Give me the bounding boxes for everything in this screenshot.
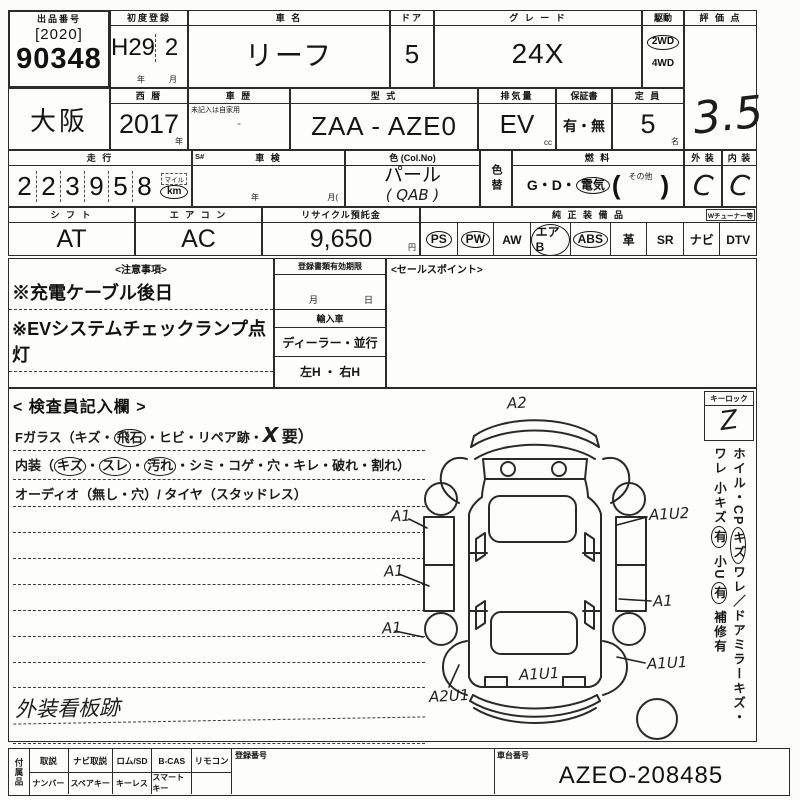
- equipment-item: AW: [502, 233, 521, 247]
- sales-point-title: <セールスポイント>: [387, 259, 756, 278]
- shift-cell: シ フ ト AT: [8, 207, 135, 256]
- equipment-item: 革: [623, 231, 635, 248]
- audio-tire-line: オーディオ（無し・穴）/ タイヤ（スタッドレス）: [13, 480, 425, 507]
- capacity-unit: 名: [671, 136, 679, 147]
- score-cell: 評 価 点 3.5: [684, 10, 757, 150]
- blank-line: [13, 507, 425, 533]
- registration-validity-title: 登録書類有効期限: [275, 259, 385, 275]
- history-label: 車 歴: [189, 89, 289, 104]
- caution-notes-title: <注意事項>: [9, 259, 273, 278]
- diagram-annotations: A2A1A1U2A1A1A1A1U1A1U1A2U1: [379, 389, 691, 741]
- equipment-item: ナビ: [690, 231, 714, 248]
- accessory-label: リモコン: [192, 749, 232, 772]
- calendar-year-cell: 西 暦 2017 年: [110, 88, 188, 150]
- recycle-deposit-cell: リサイクル預託金 9,650 円: [262, 207, 420, 256]
- diagram-annotation: A1: [382, 618, 403, 637]
- interior-grade-cell: 内 装 C: [722, 150, 757, 207]
- registration-number-label: 登録番号: [232, 749, 494, 762]
- mileage-cell: 走 行 2 2 3 9 5 8 マイル km: [8, 150, 192, 207]
- fuel-cell: 燃 料 G・D・ 電気 ( その他 ): [512, 150, 684, 207]
- door-cell: ドア 5: [390, 10, 434, 88]
- drive-label: 駆動: [643, 11, 683, 26]
- equipment-item: PW: [461, 231, 490, 248]
- keylock-mark: Z: [703, 403, 755, 439]
- inspector-notes-area: < 検査員記入欄 > Fガラス（キズ・飛石・ヒビ・リペア跡・X 要） 内装（キズ…: [13, 391, 425, 777]
- fuel-paren-open: (: [612, 170, 621, 201]
- first-registration-cell: 初度登録 H29 2 年 月: [110, 10, 188, 88]
- shift-label: シ フ ト: [9, 208, 134, 223]
- registration-month-unit: 月: [309, 293, 318, 306]
- fuel-options: G・D・: [527, 175, 576, 195]
- displacement-cell: 排気量 EV cc: [478, 88, 556, 150]
- shaken-label: 車 検: [193, 151, 344, 166]
- caution-note-line: ※EVシステムチェックランプ点灯: [9, 310, 273, 372]
- equipment-item: エアB: [531, 224, 570, 256]
- warranty-options: 有・無: [557, 104, 611, 148]
- capacity-cell: 定 員 5 名: [612, 88, 684, 150]
- color-code-handwritten: ( QAB ): [346, 186, 479, 204]
- model-code: ZAA - AZE0: [291, 104, 477, 148]
- diagram-annotation: A2U1: [429, 686, 470, 706]
- keylock-box: キーロック Z: [704, 391, 754, 441]
- fuel-electric-circled: 電気: [576, 177, 610, 194]
- model-cell: 型 式 ZAA - AZE0: [290, 88, 478, 150]
- glass-circled-flaw: 飛石: [114, 429, 146, 447]
- equipment-row: PS PW AW エアB ABS 革 SR ナビ DTV: [421, 223, 756, 256]
- exterior-grade: C: [683, 164, 724, 207]
- shift-value: AT: [9, 223, 134, 255]
- blank-line: [13, 559, 425, 585]
- equipment-cell: 純 正 装 備 品 Wチューナー等 PS PW AW エアB ABS 革 SR …: [420, 207, 757, 256]
- equipment-item: ABS: [573, 231, 608, 248]
- door-count: 5: [391, 26, 433, 82]
- glass-hand-mark: X: [263, 423, 278, 447]
- displacement-unit: cc: [544, 138, 552, 147]
- blank-line: [13, 533, 425, 559]
- diagram-annotation: A1: [384, 561, 405, 580]
- lot-number-label: 出品番号: [10, 12, 108, 26]
- color-label: 色 (Col.No): [346, 151, 479, 166]
- side-note-circled-ari2: 有: [711, 582, 727, 605]
- color-change-label: 色替: [481, 151, 511, 206]
- diagram-annotation: A1U1: [647, 653, 688, 673]
- aircon-cell: エ ア コ ン AC: [135, 207, 262, 256]
- side-note-circled-kizu: キズ: [730, 527, 746, 564]
- shaken-cell: 車 検 S# 年 月(: [192, 150, 345, 207]
- door-label: ドア: [391, 11, 433, 26]
- inspector-section: < 検査員記入欄 > Fガラス（キズ・飛石・ヒビ・リペア跡・X 要） 内装（キズ…: [8, 388, 757, 742]
- fuel-other-label: その他: [629, 171, 653, 182]
- registration-number-cell: 登録番号: [232, 749, 495, 794]
- mileage-digit: 3: [60, 171, 84, 202]
- mileage-digit: 9: [84, 171, 108, 202]
- mileage-digit: 8: [132, 171, 156, 202]
- diagram-annotation: A1: [391, 506, 412, 525]
- auction-sheet: 出品番号 [2020] 90348 初度登録 H29 2 年 月 車 名 リーフ…: [0, 0, 800, 800]
- accessory-label: キーレス: [113, 772, 153, 794]
- car-name: リーフ: [189, 26, 389, 82]
- interior-circled-kizu: キズ: [54, 457, 86, 475]
- car-name-cell: 車 名 リーフ: [188, 10, 390, 88]
- aircon-label: エ ア コ ン: [136, 208, 261, 223]
- history-cell: 車 歴 未記入は自家用 -: [188, 88, 290, 150]
- glass-condition-line: Fガラス（キズ・飛石・ヒビ・リペア跡・X 要）: [13, 419, 425, 451]
- mileage-digit: 2: [36, 171, 60, 202]
- s-mark: S#: [195, 152, 204, 161]
- interior-circled-sure: スレ: [99, 457, 131, 475]
- color-name: パール: [346, 166, 479, 186]
- color-cell: 色 (Col.No) パール ( QAB ): [345, 150, 480, 207]
- score-value: 3.5: [691, 86, 766, 144]
- lot-number: 90348: [10, 43, 108, 76]
- accessory-label: スマートキー: [152, 772, 192, 794]
- first-reg-month-unit: 月: [169, 74, 177, 85]
- blank-line: [13, 585, 425, 611]
- blank-line: [13, 663, 425, 688]
- drive-4wd: 4WD: [643, 58, 683, 69]
- first-reg-year: H29: [111, 34, 155, 62]
- diagram-annotation: A1U2: [649, 504, 690, 524]
- accessory-label: スペアキー: [69, 772, 113, 794]
- accessory-blank: [192, 772, 232, 794]
- recycle-value: 9,650: [263, 223, 419, 255]
- drive-2wd-selected: 2WD: [647, 35, 679, 50]
- diagram-annotation: A2: [507, 393, 528, 412]
- accessory-label: B-CAS: [152, 749, 192, 772]
- registration-validity-cell: 登録書類有効期限 月 日 輸入車 ディーラー・並行 左H ・ 右H: [274, 258, 386, 388]
- accessory-label: ロム/SD: [113, 749, 153, 772]
- diagram-annotation: A1: [653, 591, 674, 610]
- equipment-item: DTV: [726, 233, 750, 247]
- grade: 24X: [435, 26, 641, 82]
- warranty-label: 保証書: [557, 89, 611, 104]
- interior-grade: C: [721, 164, 759, 206]
- inspector-title: < 検査員記入欄 >: [13, 391, 425, 419]
- blank-line: [13, 637, 425, 663]
- lot-number-cell: 出品番号 [2020] 90348: [8, 10, 110, 88]
- fuel-label: 燃 料: [513, 151, 683, 166]
- drive-cell: 駆動 2WD 4WD: [642, 10, 684, 88]
- calendar-year-unit: 年: [175, 136, 183, 147]
- blank-line: [13, 611, 425, 637]
- recycle-unit: 円: [408, 242, 416, 253]
- first-reg-year-unit: 年: [137, 74, 145, 85]
- side-note-circled-ari1: 有: [711, 526, 727, 549]
- capacity-label: 定 員: [613, 89, 683, 104]
- registration-day-unit: 日: [364, 293, 373, 306]
- recycle-label: リサイクル預託金: [263, 208, 419, 223]
- aircon-value: AC: [136, 223, 261, 255]
- shaken-year-unit: 年: [251, 192, 259, 203]
- km-unit-circled: km: [160, 185, 188, 200]
- first-registration-label: 初度登録: [111, 11, 187, 26]
- side-note-vertical: ホイル・CPキズワレ／ドアミラーキズ・ワレ 小キズ有 小U有 補修有: [710, 447, 748, 735]
- first-reg-month: 2: [155, 34, 187, 62]
- chassis-number-cell: 車台番号 AZEO-208485: [494, 749, 788, 794]
- tuner-label: Wチューナー等: [706, 209, 755, 221]
- color-change-cell: 色替: [480, 150, 512, 207]
- caution-note-line: ※充電ケーブル後日: [9, 278, 273, 310]
- accessory-label: 取説: [29, 749, 69, 772]
- mileage-label: 走 行: [9, 151, 191, 166]
- sales-point-cell: <セールスポイント>: [386, 258, 757, 388]
- region: 大阪: [9, 89, 109, 149]
- warranty-cell: 保証書 有・無: [556, 88, 612, 150]
- mile-unit-label: マイル: [161, 173, 187, 185]
- equipment-item: PS: [426, 231, 452, 248]
- fuel-paren-close: ): [661, 170, 670, 201]
- diagram-annotation: A1U1: [519, 664, 560, 684]
- region-cell: 大阪: [8, 88, 110, 150]
- car-name-label: 車 名: [189, 11, 389, 26]
- shaken-month-unit: 月(: [327, 192, 338, 203]
- mileage-digit: 2: [13, 171, 36, 202]
- equipment-item: SR: [657, 233, 674, 247]
- caution-notes-cell: <注意事項> ※充電ケーブル後日 ※EVシステムチェックランプ点灯: [8, 258, 274, 388]
- grade-cell: グ レ ー ド 24X: [434, 10, 642, 88]
- calendar-year-label: 西 暦: [111, 89, 187, 104]
- import-car-label: 輸入車: [275, 310, 385, 328]
- dealer-parallel-label: ディーラー・並行: [275, 328, 385, 356]
- lot-year: [2020]: [10, 26, 108, 43]
- exterior-grade-cell: 外 装 C: [684, 150, 722, 207]
- accessories-table: 付属品 取説 ナビ取説 ロム/SD B-CAS リモコン ナンバー スペアキー …: [8, 748, 790, 796]
- displacement-label: 排気量: [479, 89, 555, 104]
- car-diagram: A2A1A1U2A1A1A1A1U1A1U1A2U1: [379, 389, 691, 741]
- history-note: 未記入は自家用: [189, 104, 289, 116]
- score-label: 評 価 点: [685, 11, 756, 26]
- mileage-digit: 5: [108, 171, 132, 202]
- handle-position-label: 左H ・ 右H: [275, 356, 385, 385]
- model-label: 型 式: [291, 89, 477, 104]
- accessories-side-label: 付属品: [9, 749, 30, 795]
- chassis-number: AZEO-208485: [494, 762, 788, 790]
- grade-label: グ レ ー ド: [435, 11, 641, 26]
- chassis-number-label: 車台番号: [494, 749, 788, 762]
- interior-condition-line: 内装（キズ・スレ・汚れ・シミ・コゲ・穴・キレ・破れ・割れ）: [13, 451, 425, 479]
- accessory-label: ナンバー: [29, 772, 69, 794]
- interior-circled-yogore: 汚れ: [144, 457, 176, 475]
- handwritten-note-exterior: 外装看板跡: [13, 684, 426, 724]
- accessory-label: ナビ取説: [69, 749, 113, 772]
